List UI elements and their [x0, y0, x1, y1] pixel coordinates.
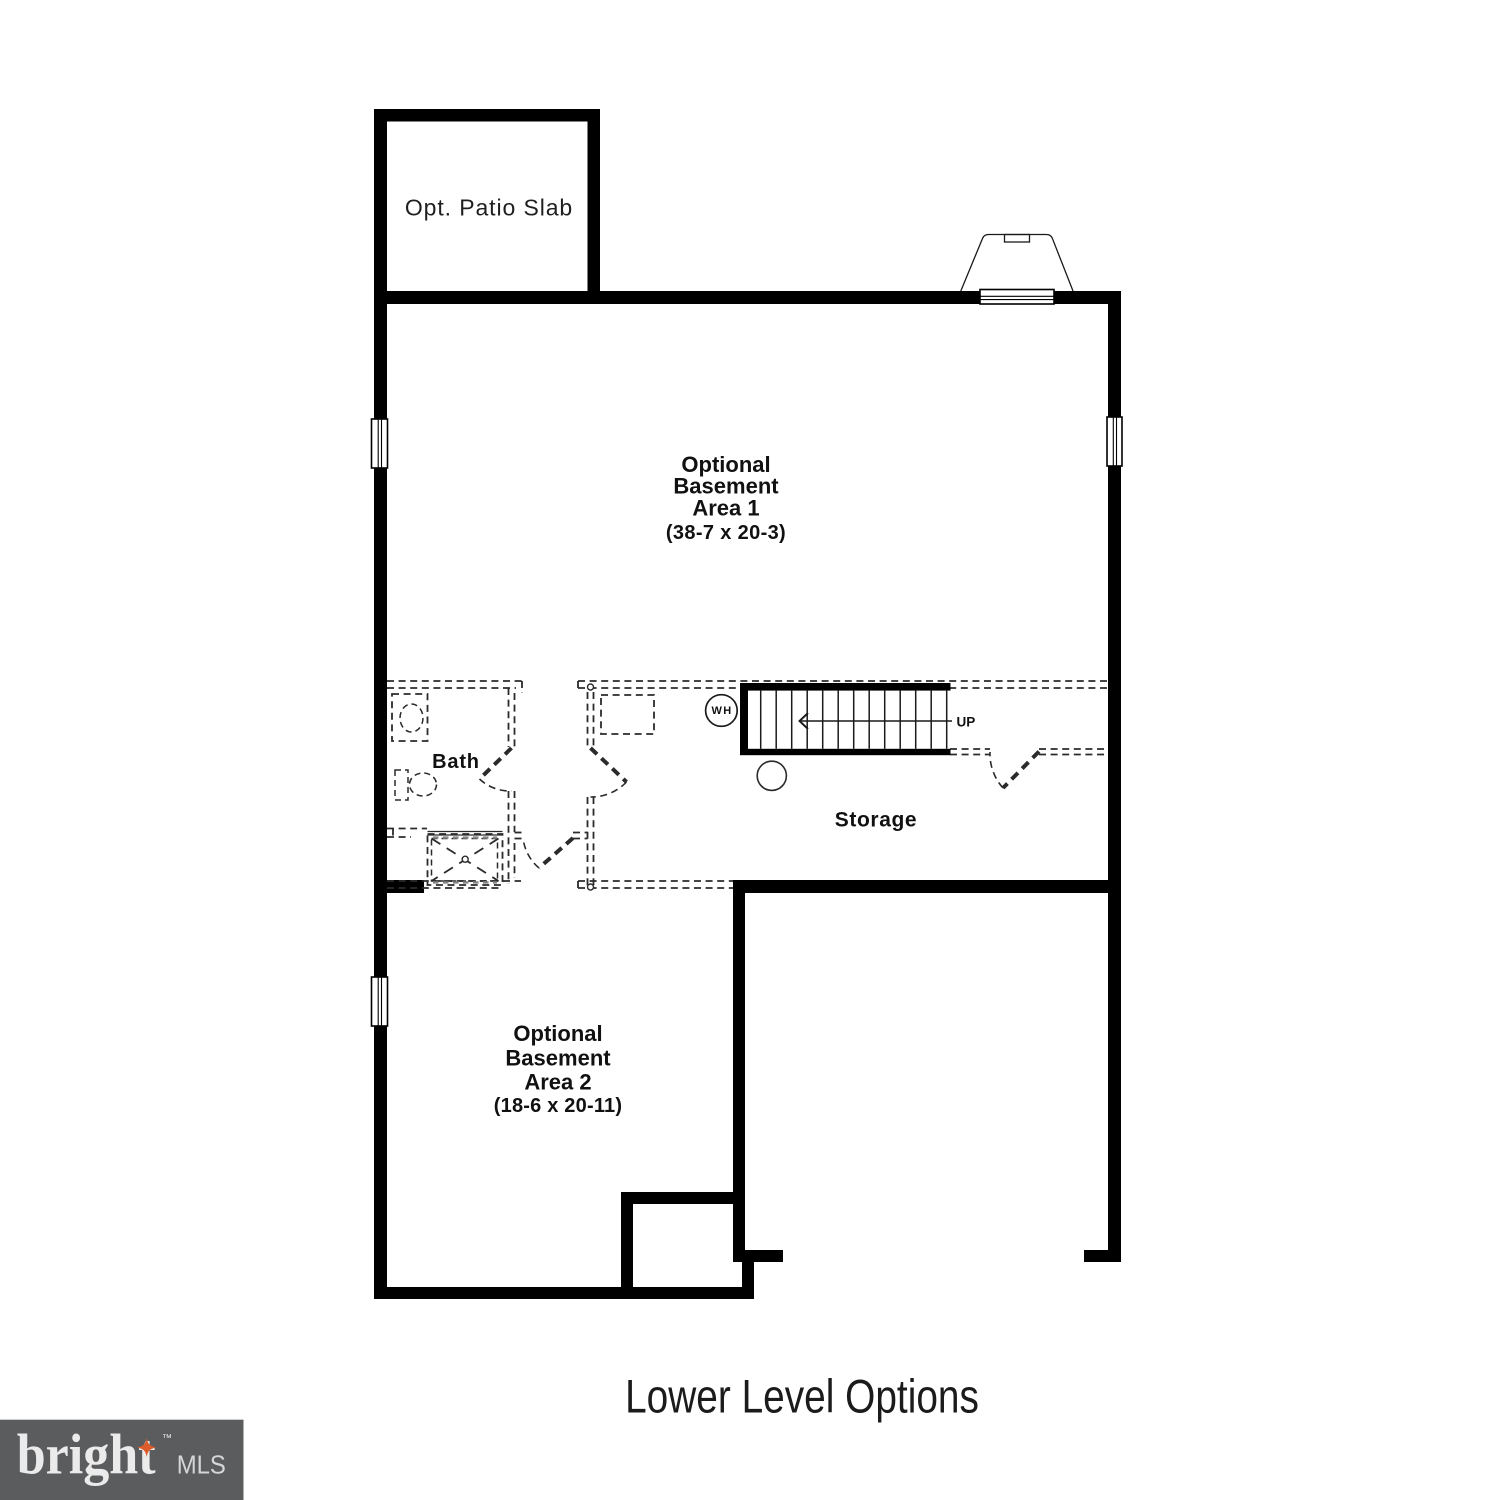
svg-text:Area 1: Area 1: [692, 496, 759, 521]
svg-text:Bath: Bath: [432, 751, 480, 773]
svg-text:MLS: MLS: [177, 1450, 226, 1479]
svg-text:UP: UP: [957, 715, 976, 730]
svg-text:Optional: Optional: [513, 1021, 602, 1046]
svg-text:bright: bright: [17, 1422, 156, 1486]
svg-text:™: ™: [162, 1433, 172, 1444]
svg-text:(18-6 x 20-11): (18-6 x 20-11): [494, 1095, 622, 1117]
svg-text:Storage: Storage: [835, 809, 917, 832]
svg-text:(38-7 x 20-3): (38-7 x 20-3): [666, 522, 786, 544]
svg-text:Basement: Basement: [505, 1046, 611, 1071]
svg-text:Area 2: Area 2: [524, 1070, 591, 1095]
svg-text:WH: WH: [712, 705, 733, 717]
svg-text:Lower Level Options: Lower Level Options: [625, 1371, 979, 1423]
svg-text:Opt. Patio Slab: Opt. Patio Slab: [405, 194, 573, 220]
